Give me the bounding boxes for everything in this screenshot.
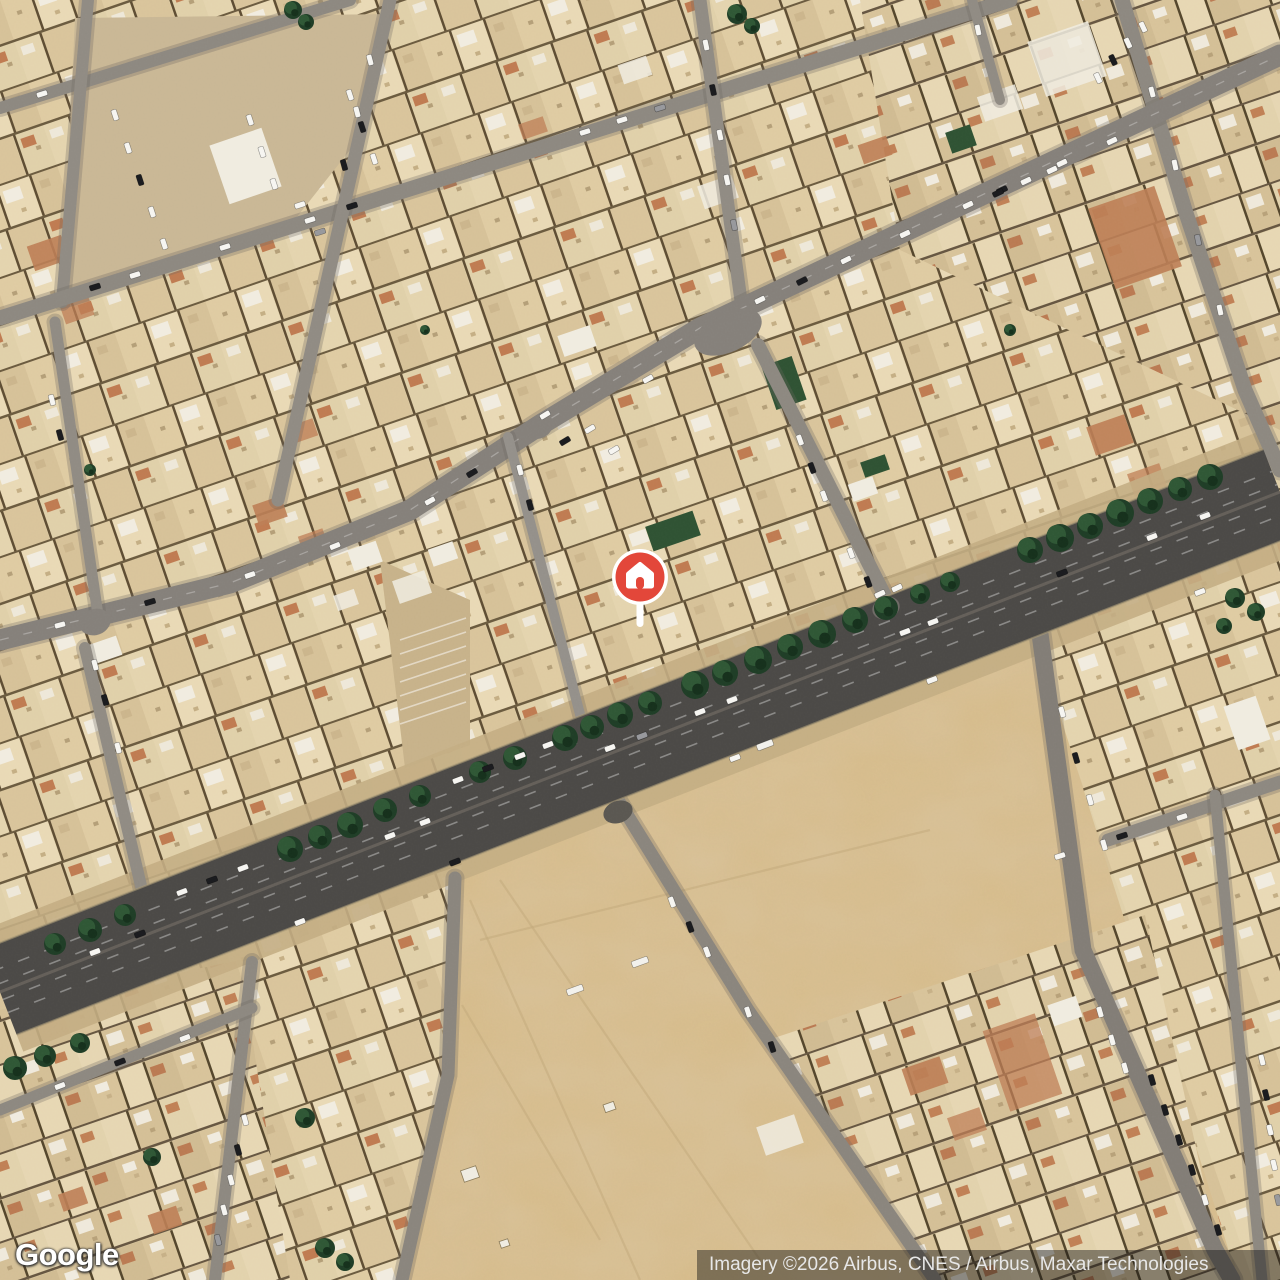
home-door [636, 577, 644, 589]
imagery-attribution: Imagery ©2026 Airbus, CNES / Airbus, Max… [697, 1250, 1280, 1280]
image-grain [0, 0, 1280, 1280]
map-canvas[interactable]: Google Imagery ©2026 Airbus, CNES / Airb… [0, 0, 1280, 1280]
google-logo[interactable]: Google [15, 1237, 119, 1273]
satellite-map [0, 0, 1280, 1280]
attribution-text: Imagery ©2026 Airbus, CNES / Airbus, Max… [709, 1254, 1208, 1275]
